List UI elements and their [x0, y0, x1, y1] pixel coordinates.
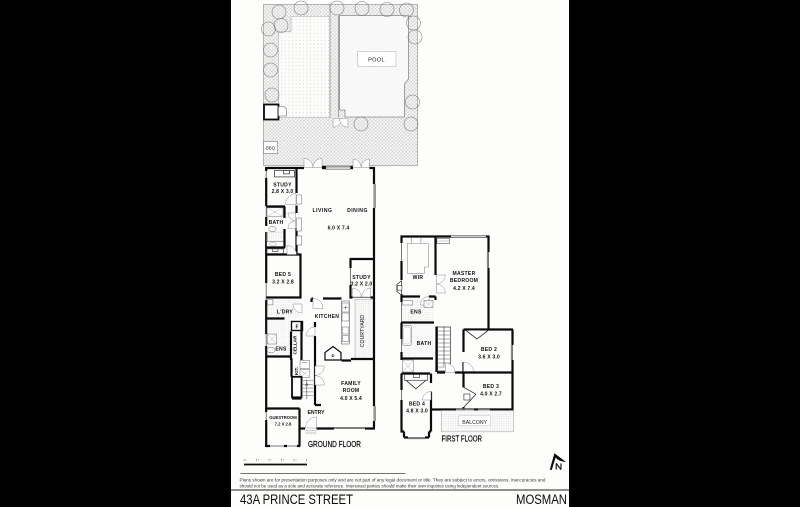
svg-text:FAMILY: FAMILY — [341, 381, 361, 387]
svg-text:2.8 X 3.0: 2.8 X 3.0 — [272, 189, 294, 195]
svg-text:WIR: WIR — [413, 275, 424, 281]
svg-text:DINING: DINING — [347, 208, 368, 214]
svg-text:Plans shown are for presentati: Plans shown are for presentation purpose… — [240, 478, 547, 483]
svg-text:should not be used as a sole a: should not be used as a sole and accurat… — [240, 484, 500, 489]
svg-text:FIRST FLOOR: FIRST FLOOR — [442, 435, 483, 444]
svg-text:F: F — [295, 325, 298, 331]
svg-text:P: P — [331, 354, 334, 359]
svg-text:ENS: ENS — [410, 310, 422, 316]
svg-text:BED 3: BED 3 — [483, 384, 499, 390]
svg-text:BED 4: BED 4 — [409, 402, 425, 408]
svg-text:6.0 X 7.4: 6.0 X 7.4 — [328, 225, 350, 231]
svg-text:BED 2: BED 2 — [481, 347, 497, 353]
svg-text:STUDY: STUDY — [352, 275, 371, 281]
svg-text:43A PRINCE STREET: 43A PRINCE STREET — [240, 492, 353, 507]
svg-text:LIVING: LIVING — [313, 208, 333, 214]
svg-text:3.2 X 2.0: 3.2 X 2.0 — [351, 282, 373, 288]
svg-text:KIT.: KIT. — [294, 367, 299, 375]
svg-text:4.2 X 7.4: 4.2 X 7.4 — [453, 286, 475, 292]
svg-text:MOSMAN: MOSMAN — [516, 492, 567, 507]
svg-text:3.2 X 2.8: 3.2 X 2.8 — [272, 280, 294, 286]
svg-text:BATH: BATH — [269, 220, 284, 226]
svg-text:4.0 X 5.4: 4.0 X 5.4 — [340, 396, 362, 402]
svg-text:STUDY: STUDY — [273, 183, 292, 189]
svg-text:GUESTROOM: GUESTROOM — [269, 415, 297, 420]
svg-text:4.0 X 2.7: 4.0 X 2.7 — [480, 392, 502, 398]
svg-text:ROOM: ROOM — [343, 388, 360, 394]
svg-text:CELLAR: CELLAR — [293, 335, 298, 355]
svg-text:4.8 X 3.0: 4.8 X 3.0 — [406, 409, 428, 415]
svg-text:GROUND FLOOR: GROUND FLOOR — [308, 440, 361, 449]
svg-text:COURTYARD: COURTYARD — [360, 315, 366, 348]
svg-text:ENTRY: ENTRY — [307, 410, 325, 416]
svg-text:BED 5: BED 5 — [275, 272, 291, 278]
svg-text:BBQ: BBQ — [266, 146, 276, 151]
svg-text:ENS: ENS — [275, 347, 287, 353]
svg-text:BALCONY: BALCONY — [462, 420, 487, 426]
svg-text:KITCHEN: KITCHEN — [315, 314, 339, 320]
svg-text:BATH: BATH — [417, 341, 432, 347]
svg-text:BEDROOM: BEDROOM — [450, 278, 478, 284]
svg-text:L'DRY: L'DRY — [277, 310, 293, 316]
svg-text:7.2 X 2.8: 7.2 X 2.8 — [275, 422, 292, 427]
svg-text:3.6 X 3.0: 3.6 X 3.0 — [478, 355, 500, 361]
svg-text:POOL: POOL — [368, 58, 385, 64]
svg-text:MASTER: MASTER — [452, 271, 475, 277]
